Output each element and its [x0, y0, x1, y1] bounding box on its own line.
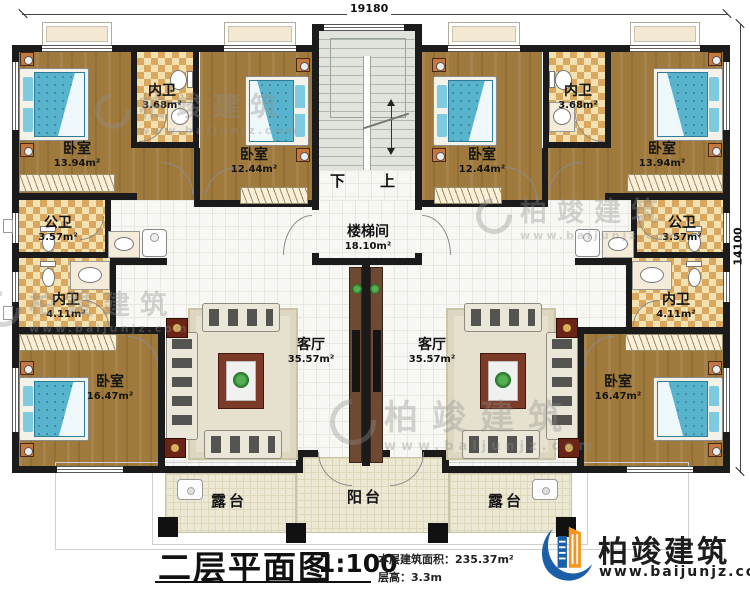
wall-stair-right [415, 24, 422, 210]
tv-cabinet [556, 318, 578, 338]
plant-icon [495, 372, 511, 388]
terrace-sink [532, 479, 558, 500]
wall-bottom [123, 466, 296, 473]
watermark: 柏竣建筑 www.baijunjz.com [330, 390, 597, 454]
window [723, 368, 730, 432]
bed-pillows [23, 386, 33, 432]
window [723, 62, 730, 130]
stair-arrow-down-icon [387, 148, 395, 155]
wall-bath-top-right [543, 45, 549, 148]
bed-mattress [34, 72, 85, 137]
nightstand [432, 148, 446, 162]
company-logo-icon [538, 521, 594, 581]
company-logo: 柏竣建筑 www.baijunjz.com [538, 521, 738, 585]
floor-area-note: 本层建筑面积：235.37m² [378, 551, 514, 567]
room-name: 公卫 [38, 215, 77, 232]
floor-height-note: 层高：3.3m [378, 569, 442, 585]
room-area: 16.47m² [87, 391, 133, 403]
watermark-logo-icon [88, 86, 139, 137]
room-label-bedroom-mid-left: 卧室12.44m² [231, 147, 277, 176]
room-name: 客厅 [409, 337, 455, 354]
stair-arrow-up-icon [387, 99, 395, 106]
wall-bath-top-right [543, 142, 611, 148]
bed-mattress [448, 80, 493, 142]
stair-window [324, 24, 404, 31]
room-label-living-left: 客厅35.57m² [288, 337, 334, 366]
nightstand [20, 443, 34, 457]
sofa-pillows [211, 436, 275, 453]
room-label-living-right: 客厅35.57m² [409, 337, 455, 366]
room-label-bedroom-bottom-right: 卧室16.47m² [595, 374, 641, 403]
sofa [204, 430, 282, 459]
watermark-text-block: 柏竣建筑 www.baijunjz.com [29, 283, 189, 335]
bed [653, 377, 723, 441]
window [723, 272, 730, 302]
nightstand [708, 443, 722, 457]
watermark-text: 柏竣建筑 [384, 390, 597, 439]
sink [640, 267, 664, 283]
wall-corridor-right [575, 258, 632, 265]
wall-bottom [12, 466, 57, 473]
window [12, 368, 19, 432]
plant-icon [370, 284, 380, 294]
dimension-top-value: 19180 [347, 2, 391, 15]
toilet-tank [40, 261, 56, 267]
room-name: 卧室 [54, 141, 100, 158]
nightstand [20, 143, 34, 157]
bed-mattress [657, 72, 708, 137]
toilet-tank [686, 261, 702, 267]
watermark-text-block: 柏竣建筑 www.baijunjz.com [139, 85, 299, 137]
wall-bedroom-bottom-right-top [577, 327, 730, 334]
room-label-bedroom-top-left: 卧室13.94m² [54, 141, 100, 170]
room-area: 13.94m² [639, 158, 685, 170]
window-sill [3, 219, 13, 233]
room-name: 内卫 [558, 83, 597, 100]
nightstand [296, 148, 310, 162]
room-name: 内卫 [656, 292, 695, 309]
bed [19, 377, 89, 441]
washing-machine-door [150, 233, 159, 242]
watermark-logo-icon [0, 284, 28, 335]
wall-bath-top-left [131, 142, 199, 148]
wall-stub [194, 148, 200, 207]
tv [373, 330, 381, 392]
closet [19, 174, 115, 192]
room-name: 卧室 [595, 374, 641, 391]
watermark-text: 柏竣建筑 [139, 85, 299, 124]
bay-window [448, 22, 520, 46]
watermark: 柏竣建筑 www.baijunjz.com [476, 190, 680, 242]
closet [625, 334, 723, 351]
window [448, 45, 520, 52]
room-area: 18.10m² [345, 241, 391, 253]
vanity-sink [114, 237, 134, 251]
window [57, 466, 123, 473]
room-label-bath-shared-left: 公卫3.57m² [38, 215, 77, 244]
watermark-logo-icon [469, 191, 520, 242]
room-name: 卧室 [231, 147, 277, 164]
nightstand [20, 52, 34, 66]
window [224, 45, 296, 52]
watermark-url: www.baijunjz.com [139, 124, 299, 137]
bed [433, 76, 497, 146]
window [42, 45, 112, 52]
watermark-url: www.baijunjz.com [384, 439, 597, 454]
sofa [464, 303, 542, 332]
sofa-pillows [172, 339, 192, 433]
room-area: 12.44m² [231, 164, 277, 176]
room-label-bath-ensuite-top-right: 内卫3.68m² [558, 83, 597, 112]
sofa [202, 303, 280, 332]
wall-bath-top-right [605, 45, 611, 148]
watermark-text-block: 柏竣建筑 www.baijunjz.com [520, 190, 680, 242]
stair-up-label: 上 [380, 170, 395, 191]
bed-pillows [709, 77, 719, 132]
watermark-text: 柏竣建筑 [520, 190, 680, 229]
room-area: 13.94m² [54, 158, 100, 170]
room-area: 12.44m² [459, 164, 505, 176]
bed-mattress [657, 381, 708, 437]
nightstand [708, 52, 722, 66]
wall-stair-left [312, 24, 319, 210]
bay-window [630, 22, 700, 46]
bay-window [224, 22, 296, 46]
room-label-bedroom-bottom-left: 卧室16.47m² [87, 374, 133, 403]
tv-cabinet [164, 438, 186, 458]
wall-corridor-left [110, 258, 167, 265]
plant-icon [352, 284, 362, 294]
room-name: 客厅 [288, 337, 334, 354]
watermark-text: 柏竣建筑 [29, 283, 189, 322]
stair-stringer [363, 56, 371, 170]
sofa-pillows [209, 309, 273, 326]
wall-bottom [693, 466, 730, 473]
dimension-right-value: 14100 [732, 224, 745, 268]
room-name: 卧室 [459, 147, 505, 164]
balcony-label: 阳台 [347, 486, 383, 507]
window [630, 45, 700, 52]
room-name: 卧室 [87, 374, 133, 391]
column [158, 517, 178, 537]
terrace-left-label: 露台 [211, 490, 247, 511]
nightstand [432, 58, 446, 72]
room-area: 35.57m² [288, 354, 334, 366]
column [286, 523, 306, 543]
room-area: 4.11m² [656, 309, 695, 321]
title-underline [155, 581, 371, 583]
wall-bath-shared-right [631, 252, 730, 258]
bed-mattress [34, 381, 85, 437]
window [723, 213, 730, 243]
room-area: 3.68m² [558, 100, 597, 112]
room-label-bedroom-mid-right: 卧室12.44m² [459, 147, 505, 176]
bay-window [42, 22, 112, 46]
wall-bath-shared-left [12, 252, 111, 258]
watermark: 柏竣建筑 www.baijunjz.com [95, 85, 299, 137]
bed [19, 68, 89, 141]
company-website: www.baijunjz.com [599, 564, 750, 580]
tv [352, 330, 360, 392]
wall-bottom [449, 466, 627, 473]
closet [19, 334, 117, 351]
nightstand [708, 143, 722, 157]
bed [653, 68, 723, 141]
sofa-pillows [471, 309, 535, 326]
sink [78, 267, 102, 283]
sofa [166, 332, 198, 440]
bed-pillows [437, 85, 447, 137]
room-label-bedroom-top-right: 卧室13.94m² [639, 141, 685, 170]
room-name: 楼梯间 [345, 224, 391, 241]
watermark-text-block: 柏竣建筑 www.baijunjz.com [384, 390, 597, 454]
terrace-right-label: 露台 [488, 490, 524, 511]
floor-plan-canvas: 下 上 [0, 0, 750, 594]
window [627, 466, 693, 473]
room-area: 3.57m² [38, 232, 77, 244]
watermark-url: www.baijunjz.com [29, 322, 189, 335]
room-area: 16.47m² [595, 391, 641, 403]
nightstand [296, 58, 310, 72]
room-label-stair-hall: 楼梯间18.10m² [345, 224, 391, 253]
bed-pillows [709, 386, 719, 432]
stair-direction-line [391, 106, 392, 148]
nightstand [20, 361, 34, 375]
window [12, 213, 19, 243]
watermark-logo-icon [321, 390, 386, 455]
toilet-bowl [688, 268, 701, 287]
wall-stair-hall-bottom [312, 258, 422, 265]
room-name: 卧室 [639, 141, 685, 158]
closet [240, 187, 308, 204]
watermark-url: www.baijunjz.com [520, 229, 680, 242]
wall-bedroom-top-left-bottom [12, 193, 137, 200]
room-area: 35.57m² [409, 354, 455, 366]
terrace-sink [177, 479, 203, 500]
stair-down-label: 下 [330, 170, 345, 191]
nightstand [708, 361, 722, 375]
plant-icon [233, 372, 249, 388]
watermark: 柏竣建筑 www.baijunjz.com [0, 283, 189, 335]
bed-pillows [23, 77, 33, 132]
room-label-bath-ensuite-right: 内卫4.11m² [656, 292, 695, 321]
window [12, 62, 19, 130]
column [428, 523, 448, 543]
